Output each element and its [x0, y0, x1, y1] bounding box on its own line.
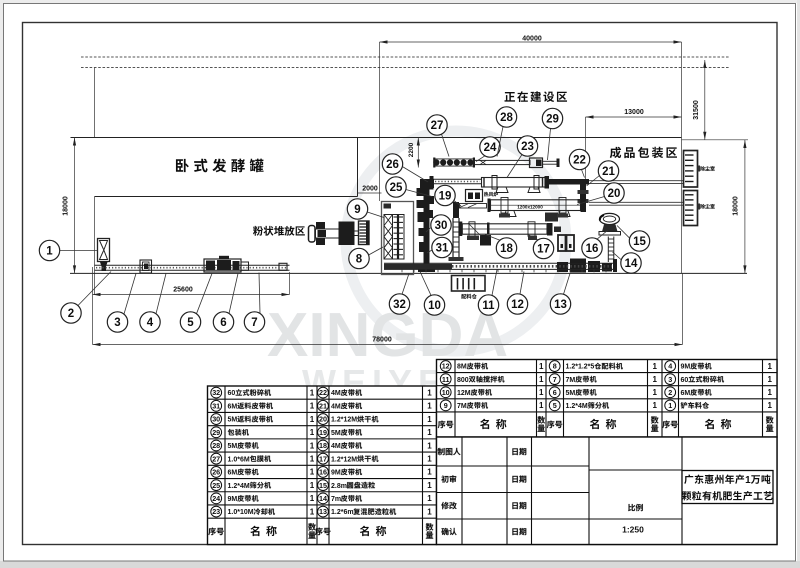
svg-text:1: 1: [767, 401, 772, 410]
svg-text:15: 15: [633, 236, 646, 248]
svg-text:19: 19: [319, 428, 327, 437]
svg-text:1: 1: [539, 401, 544, 410]
svg-text:20: 20: [319, 415, 327, 424]
svg-text:1200x12000: 1200x12000: [517, 204, 543, 209]
svg-text:18: 18: [500, 243, 513, 255]
svg-text:4M: 4M: [331, 443, 341, 450]
svg-text:1: 1: [652, 388, 657, 397]
svg-text:11: 11: [442, 375, 450, 384]
svg-text:27: 27: [212, 454, 220, 463]
svg-text:5M: 5M: [566, 390, 576, 397]
svg-text:6: 6: [220, 317, 226, 329]
svg-text:31: 31: [212, 401, 220, 410]
svg-text:78000: 78000: [372, 337, 392, 344]
svg-text:1.2*12M: 1.2*12M: [331, 417, 357, 424]
svg-text:1:250: 1:250: [622, 525, 644, 535]
svg-text:1: 1: [652, 375, 657, 384]
svg-text:13000: 13000: [624, 109, 644, 116]
svg-text:1: 1: [310, 494, 315, 503]
svg-text:16: 16: [586, 243, 599, 255]
svg-text:21: 21: [602, 166, 615, 178]
svg-text:12: 12: [511, 299, 524, 311]
svg-text:3: 3: [668, 375, 672, 384]
svg-text:1: 1: [427, 481, 432, 490]
svg-text:1: 1: [539, 388, 544, 397]
svg-text:1: 1: [310, 428, 315, 437]
svg-text:29: 29: [546, 114, 559, 126]
svg-text:1: 1: [310, 388, 315, 397]
svg-text:13: 13: [554, 299, 567, 311]
svg-text:1.2*4M: 1.2*4M: [228, 483, 250, 490]
svg-text:4M: 4M: [331, 390, 341, 397]
svg-text:19: 19: [439, 191, 452, 203]
svg-text:32: 32: [212, 388, 220, 397]
svg-text:1: 1: [310, 507, 315, 516]
svg-text:17: 17: [319, 454, 327, 463]
svg-text:1: 1: [745, 475, 751, 486]
svg-text:1: 1: [427, 428, 432, 437]
svg-text:31500: 31500: [693, 100, 700, 120]
svg-text:1: 1: [46, 246, 53, 258]
svg-text:2.8m: 2.8m: [331, 483, 347, 490]
svg-text:5M: 5M: [228, 443, 238, 450]
svg-text:1: 1: [310, 415, 315, 424]
svg-text:24: 24: [212, 494, 220, 503]
svg-text:30: 30: [435, 220, 448, 232]
svg-text:1: 1: [427, 507, 432, 516]
svg-text:9M: 9M: [228, 496, 238, 503]
svg-text:1: 1: [427, 468, 432, 477]
svg-text:20: 20: [608, 188, 621, 200]
svg-text:1: 1: [427, 402, 432, 411]
svg-text:6M: 6M: [228, 403, 238, 410]
svg-text:25: 25: [212, 481, 220, 490]
svg-text:1: 1: [767, 375, 772, 384]
svg-text:9M: 9M: [331, 470, 341, 477]
svg-text:1.2*1.2*5: 1.2*1.2*5: [566, 364, 595, 371]
svg-text:12M: 12M: [457, 390, 471, 397]
svg-text:1: 1: [668, 401, 672, 410]
svg-text:6M: 6M: [681, 390, 691, 397]
svg-text:13: 13: [319, 507, 327, 516]
svg-text:40000: 40000: [522, 36, 542, 43]
svg-text:14: 14: [319, 494, 327, 503]
svg-text:2: 2: [668, 388, 672, 397]
svg-text:18: 18: [319, 441, 327, 450]
svg-text:9: 9: [444, 401, 448, 410]
svg-text:30: 30: [212, 415, 220, 424]
svg-text:1: 1: [310, 441, 315, 450]
svg-text:3: 3: [114, 317, 120, 329]
svg-text:1: 1: [310, 468, 315, 477]
svg-text:9M: 9M: [681, 364, 691, 371]
svg-text:27: 27: [431, 120, 444, 132]
svg-text:14: 14: [625, 258, 638, 270]
svg-text:26: 26: [386, 159, 399, 171]
svg-text:5: 5: [187, 317, 194, 329]
svg-text:1: 1: [310, 481, 315, 490]
svg-text:1: 1: [539, 375, 544, 384]
svg-text:15: 15: [319, 481, 327, 490]
svg-text:6M: 6M: [228, 470, 238, 477]
svg-text:1.0*6M: 1.0*6M: [228, 456, 250, 463]
svg-text:7M: 7M: [457, 403, 467, 410]
svg-text:11: 11: [482, 300, 495, 312]
svg-text:1: 1: [652, 362, 657, 371]
svg-text:7: 7: [553, 375, 557, 384]
svg-text:16: 16: [319, 468, 327, 477]
svg-text:7: 7: [251, 317, 257, 329]
svg-text:28: 28: [212, 441, 220, 450]
svg-text:7M: 7M: [566, 377, 576, 384]
svg-text:4: 4: [147, 317, 154, 329]
svg-text:21: 21: [319, 401, 327, 410]
svg-text:17: 17: [537, 244, 550, 256]
svg-text:10: 10: [442, 388, 450, 397]
svg-text:25600: 25600: [173, 287, 193, 294]
svg-text:26: 26: [212, 468, 220, 477]
svg-text:23: 23: [212, 507, 220, 516]
svg-text:2000: 2000: [362, 186, 378, 193]
svg-text:1: 1: [652, 401, 657, 410]
svg-text:1: 1: [427, 441, 432, 450]
svg-text:1: 1: [310, 455, 315, 464]
svg-text:24: 24: [484, 142, 497, 154]
svg-text:7m: 7m: [331, 496, 341, 503]
svg-text:1: 1: [427, 455, 432, 464]
svg-text:1: 1: [427, 388, 432, 397]
svg-text:28: 28: [500, 112, 513, 124]
svg-text:18000: 18000: [733, 196, 740, 216]
svg-text:32: 32: [393, 299, 406, 311]
svg-text:5M: 5M: [228, 417, 238, 424]
svg-text:12: 12: [442, 362, 450, 371]
svg-text:1: 1: [427, 415, 432, 424]
svg-text:2200: 2200: [408, 142, 415, 157]
svg-text:22: 22: [319, 388, 327, 397]
svg-text:8: 8: [356, 254, 363, 266]
svg-text:1.2*12M: 1.2*12M: [331, 456, 357, 463]
svg-text:1: 1: [767, 388, 772, 397]
svg-text:6: 6: [553, 388, 557, 397]
svg-text:31: 31: [436, 243, 449, 255]
svg-text:1: 1: [310, 402, 315, 411]
svg-text:1.0*10M: 1.0*10M: [228, 509, 254, 516]
svg-text:800: 800: [457, 377, 469, 384]
svg-text:23: 23: [521, 141, 534, 153]
svg-text:10: 10: [428, 300, 441, 312]
svg-text:1.2*4M: 1.2*4M: [566, 403, 588, 410]
svg-text:8: 8: [553, 362, 557, 371]
svg-text:25: 25: [390, 182, 403, 194]
svg-text:8M: 8M: [457, 364, 467, 371]
svg-text:29: 29: [212, 428, 220, 437]
svg-text:4: 4: [668, 362, 672, 371]
svg-text:5M: 5M: [331, 430, 341, 437]
svg-text:1: 1: [767, 362, 772, 371]
svg-text:1.2*6m: 1.2*6m: [331, 509, 354, 516]
svg-text:9: 9: [354, 204, 360, 216]
svg-text:1: 1: [427, 494, 432, 503]
svg-text:60: 60: [681, 377, 689, 384]
svg-text:5: 5: [553, 401, 557, 410]
svg-text:18000: 18000: [63, 196, 70, 216]
svg-text:1: 1: [539, 362, 544, 371]
svg-text:22: 22: [573, 155, 586, 167]
svg-text:2: 2: [68, 308, 74, 320]
svg-text:4M: 4M: [331, 403, 341, 410]
svg-text:60: 60: [228, 390, 236, 397]
